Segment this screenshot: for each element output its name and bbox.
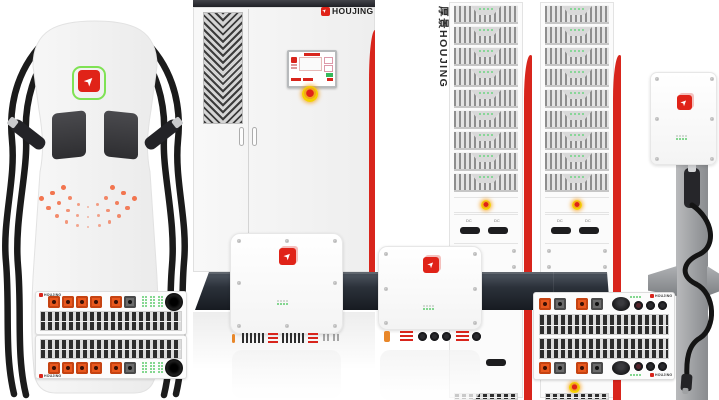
indicator-dot	[68, 196, 72, 200]
cabinet-brand: ➤ HOUJING	[321, 6, 374, 16]
indicator-dot	[39, 196, 44, 201]
ventilation-grille	[203, 12, 243, 124]
brand-name-label: HOUJING	[332, 6, 374, 16]
wallbox-connectors	[230, 332, 343, 346]
breaker-label: DC	[466, 218, 472, 223]
rack-module-stack	[545, 5, 609, 194]
indicator-dot	[117, 214, 121, 218]
indicator-dot	[61, 185, 66, 190]
indicator-dot	[87, 226, 89, 228]
indicator-dot	[106, 209, 110, 213]
logo-arrow-icon: ➤	[426, 260, 436, 270]
power-module	[454, 173, 518, 192]
status-leds	[630, 296, 641, 298]
door-handle-right	[252, 127, 257, 146]
door-seam	[248, 9, 249, 270]
status-leds	[142, 296, 147, 307]
emergency-stop-button	[569, 382, 580, 393]
indicator-dot	[50, 191, 55, 196]
indicator-dot	[98, 224, 101, 227]
indicator-dot	[57, 201, 61, 205]
estop-strip	[545, 197, 609, 213]
screen-ok-button	[326, 73, 333, 77]
module-grille	[40, 339, 182, 359]
power-module	[454, 89, 518, 108]
power-module	[545, 152, 609, 171]
indicator-dot	[108, 220, 112, 224]
rectifier-module: HOUJING	[35, 291, 187, 335]
power-module	[454, 68, 518, 87]
status-leds	[158, 362, 163, 373]
rack-module-stack	[454, 5, 518, 194]
indicator-dot	[76, 214, 79, 217]
breaker-label: DC	[557, 218, 563, 223]
power-module	[545, 68, 609, 87]
brand-logo-icon: ➤	[423, 257, 439, 273]
status-leds	[676, 135, 687, 140]
power-module	[454, 5, 518, 24]
indicator-dot	[104, 196, 108, 200]
screen-footer	[291, 78, 333, 81]
power-module	[545, 5, 609, 24]
power-module	[454, 110, 518, 129]
breaker-panel: DC DC	[454, 214, 518, 244]
rectifier-module-wide: HOUJING HOUJING	[533, 292, 675, 380]
rotary-breaker	[486, 359, 506, 366]
indicator-dot	[87, 216, 89, 218]
logo-arrow-icon: ➤	[679, 97, 689, 107]
module-grille	[40, 311, 182, 331]
status-leds	[150, 296, 155, 307]
rotary-breaker	[488, 227, 508, 234]
power-module	[545, 89, 609, 108]
brand-logo-icon: ➤	[279, 248, 296, 265]
cooling-fan	[165, 359, 183, 377]
logo-arrow-icon: ➤	[282, 251, 294, 263]
indicator-dot	[66, 209, 70, 213]
accent-stripe	[369, 30, 375, 272]
module-brand: HOUJING	[39, 374, 61, 378]
indicator-dot	[121, 191, 126, 196]
estop-strip	[454, 197, 518, 213]
power-module	[545, 131, 609, 150]
wallbox-connectors	[378, 328, 482, 346]
screen-logo	[291, 57, 297, 63]
module-brand: HOUJING	[650, 373, 672, 377]
indicator-dot	[77, 203, 80, 206]
status-leds	[423, 305, 434, 310]
power-module	[545, 47, 609, 66]
indicator-dot	[46, 206, 50, 210]
breaker-label: DC	[585, 218, 591, 223]
indicator-dot	[115, 201, 119, 205]
indicator-dot	[65, 220, 69, 224]
rotary-knob	[612, 297, 630, 311]
brand-logo-icon: ➤	[321, 7, 330, 16]
breaker-panel: DC DC	[545, 214, 609, 244]
indicator-dot	[55, 214, 59, 218]
rectifier-module-pair: HOUJING HOUJING	[35, 291, 185, 379]
power-module	[545, 26, 609, 45]
status-leds	[150, 362, 155, 373]
bottom-vent	[545, 393, 609, 400]
module-grille	[539, 338, 669, 359]
power-module	[454, 47, 518, 66]
screen-panel	[324, 57, 333, 72]
indicator-dot	[132, 196, 137, 201]
power-module	[545, 173, 609, 192]
indicator-dot	[96, 203, 99, 206]
rotary-knob	[612, 361, 630, 375]
touchscreen-display	[287, 50, 337, 88]
cable-plug	[680, 374, 692, 392]
status-leds	[277, 300, 288, 305]
indicator-dot	[87, 206, 89, 208]
status-leds	[158, 296, 163, 307]
indicator-dot	[76, 224, 79, 227]
module-grille	[539, 314, 669, 335]
wallbox-reflection	[232, 350, 341, 398]
cooling-fan	[165, 293, 183, 311]
indicator-dot	[110, 185, 115, 190]
status-leds	[630, 374, 641, 376]
screen-sidebar	[291, 57, 297, 72]
logo-arrow-icon: ➤	[322, 8, 329, 15]
emergency-stop-button	[481, 200, 491, 210]
brand-logo-icon: ➤	[677, 95, 692, 110]
indicator-dot	[97, 214, 100, 217]
emergency-stop-button	[572, 200, 582, 210]
rotary-breaker	[579, 227, 599, 234]
indicator-dot	[125, 206, 129, 210]
power-module	[454, 131, 518, 150]
rotary-breaker	[460, 227, 480, 234]
rectifier-module: HOUJING	[35, 335, 187, 379]
screen-header	[304, 53, 320, 56]
breaker-label: DC	[494, 218, 500, 223]
module-brand: HOUJING	[650, 294, 672, 298]
product-collage: ➤ ➤ HOUJING	[0, 0, 719, 400]
accent-stripe	[524, 55, 532, 400]
wallbox-reflection	[380, 350, 480, 400]
rotary-breaker	[551, 227, 571, 234]
power-module	[545, 110, 609, 129]
status-leds	[142, 362, 147, 373]
power-module	[454, 152, 518, 171]
charger-box: ➤	[650, 72, 717, 165]
screen-chart	[299, 57, 322, 71]
power-module	[454, 26, 518, 45]
door-handle-left	[239, 127, 244, 146]
emergency-stop-button	[302, 86, 318, 102]
wallbox-charger: ➤	[230, 233, 343, 334]
wallbox-charger: ➤	[378, 246, 482, 330]
